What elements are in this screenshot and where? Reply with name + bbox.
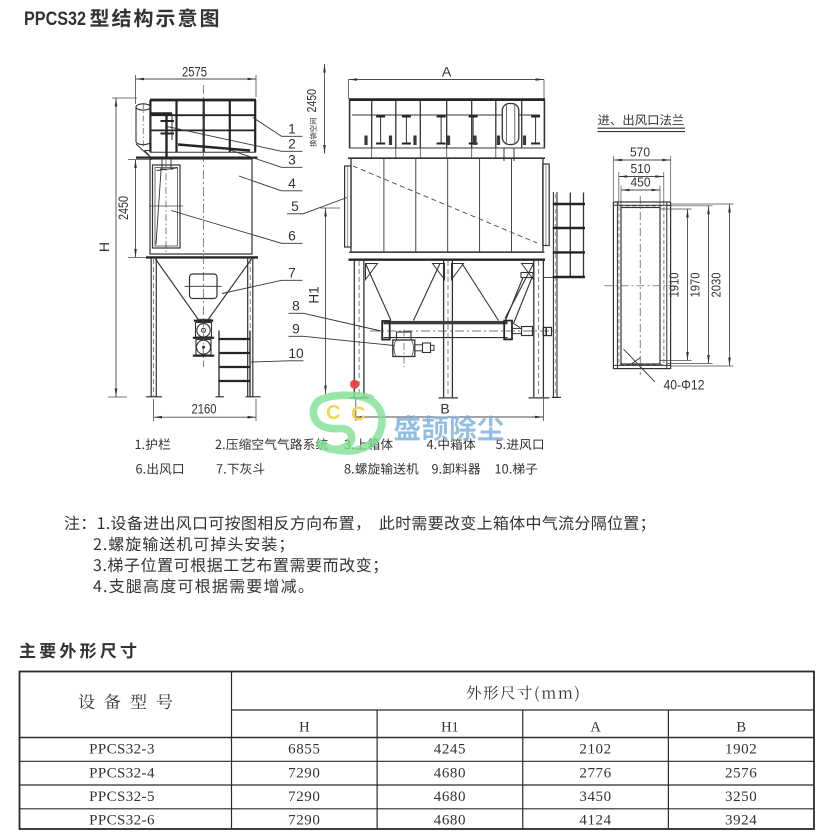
svg-text:10: 10	[288, 346, 304, 361]
svg-text:2450: 2450	[305, 89, 319, 113]
svg-text:1902: 1902	[725, 742, 757, 758]
svg-text:3: 3	[288, 153, 296, 168]
svg-text:3450: 3450	[579, 789, 611, 805]
svg-text:H1: H1	[307, 286, 322, 303]
svg-text:2: 2	[288, 137, 296, 152]
svg-text:3250: 3250	[725, 789, 757, 805]
svg-text:2576: 2576	[725, 765, 757, 781]
svg-text:7290: 7290	[288, 789, 320, 805]
svg-text:5: 5	[291, 199, 299, 214]
svg-text:7: 7	[288, 266, 296, 281]
svg-text:PPCS32-4: PPCS32-4	[89, 765, 155, 781]
svg-text:1910: 1910	[667, 273, 682, 298]
svg-text:7290: 7290	[288, 765, 320, 781]
svg-text:8: 8	[292, 299, 300, 314]
svg-text:7290: 7290	[288, 812, 320, 828]
svg-text:PPCS32: PPCS32	[24, 9, 86, 30]
svg-text:2160: 2160	[192, 402, 217, 417]
svg-text:C: C	[326, 402, 340, 424]
svg-text:2575: 2575	[182, 65, 207, 80]
svg-text:C: C	[351, 404, 365, 426]
svg-text:2776: 2776	[579, 765, 611, 781]
svg-text:6855: 6855	[288, 742, 320, 758]
svg-text:A: A	[442, 64, 452, 80]
svg-text:450: 450	[631, 175, 651, 190]
svg-text:4245: 4245	[434, 742, 466, 758]
svg-text:4680: 4680	[434, 789, 466, 805]
svg-text:4: 4	[288, 176, 296, 191]
svg-text:1: 1	[288, 122, 296, 137]
svg-text:PPCS32-6: PPCS32-6	[89, 812, 155, 828]
svg-text:4680: 4680	[434, 765, 466, 781]
svg-text:3924: 3924	[725, 812, 757, 828]
svg-text:9: 9	[292, 322, 300, 337]
svg-text:H: H	[299, 720, 310, 736]
svg-text:B: B	[440, 401, 449, 417]
svg-text:2030: 2030	[709, 273, 724, 298]
svg-text:H: H	[96, 242, 112, 252]
svg-text:2102: 2102	[579, 742, 611, 758]
svg-text:1970: 1970	[688, 273, 703, 298]
svg-text:570: 570	[630, 145, 650, 160]
svg-text:PPCS32-3: PPCS32-3	[89, 742, 155, 758]
svg-text:H1: H1	[441, 720, 459, 736]
svg-text:40-Φ12: 40-Φ12	[664, 378, 705, 393]
svg-text:B: B	[736, 720, 746, 736]
svg-text:4680: 4680	[434, 812, 466, 828]
svg-text:PPCS32-5: PPCS32-5	[89, 789, 155, 805]
svg-text:A: A	[590, 720, 601, 736]
svg-text:6: 6	[288, 229, 296, 244]
svg-text:2450: 2450	[116, 196, 131, 220]
svg-text:4124: 4124	[579, 812, 611, 828]
